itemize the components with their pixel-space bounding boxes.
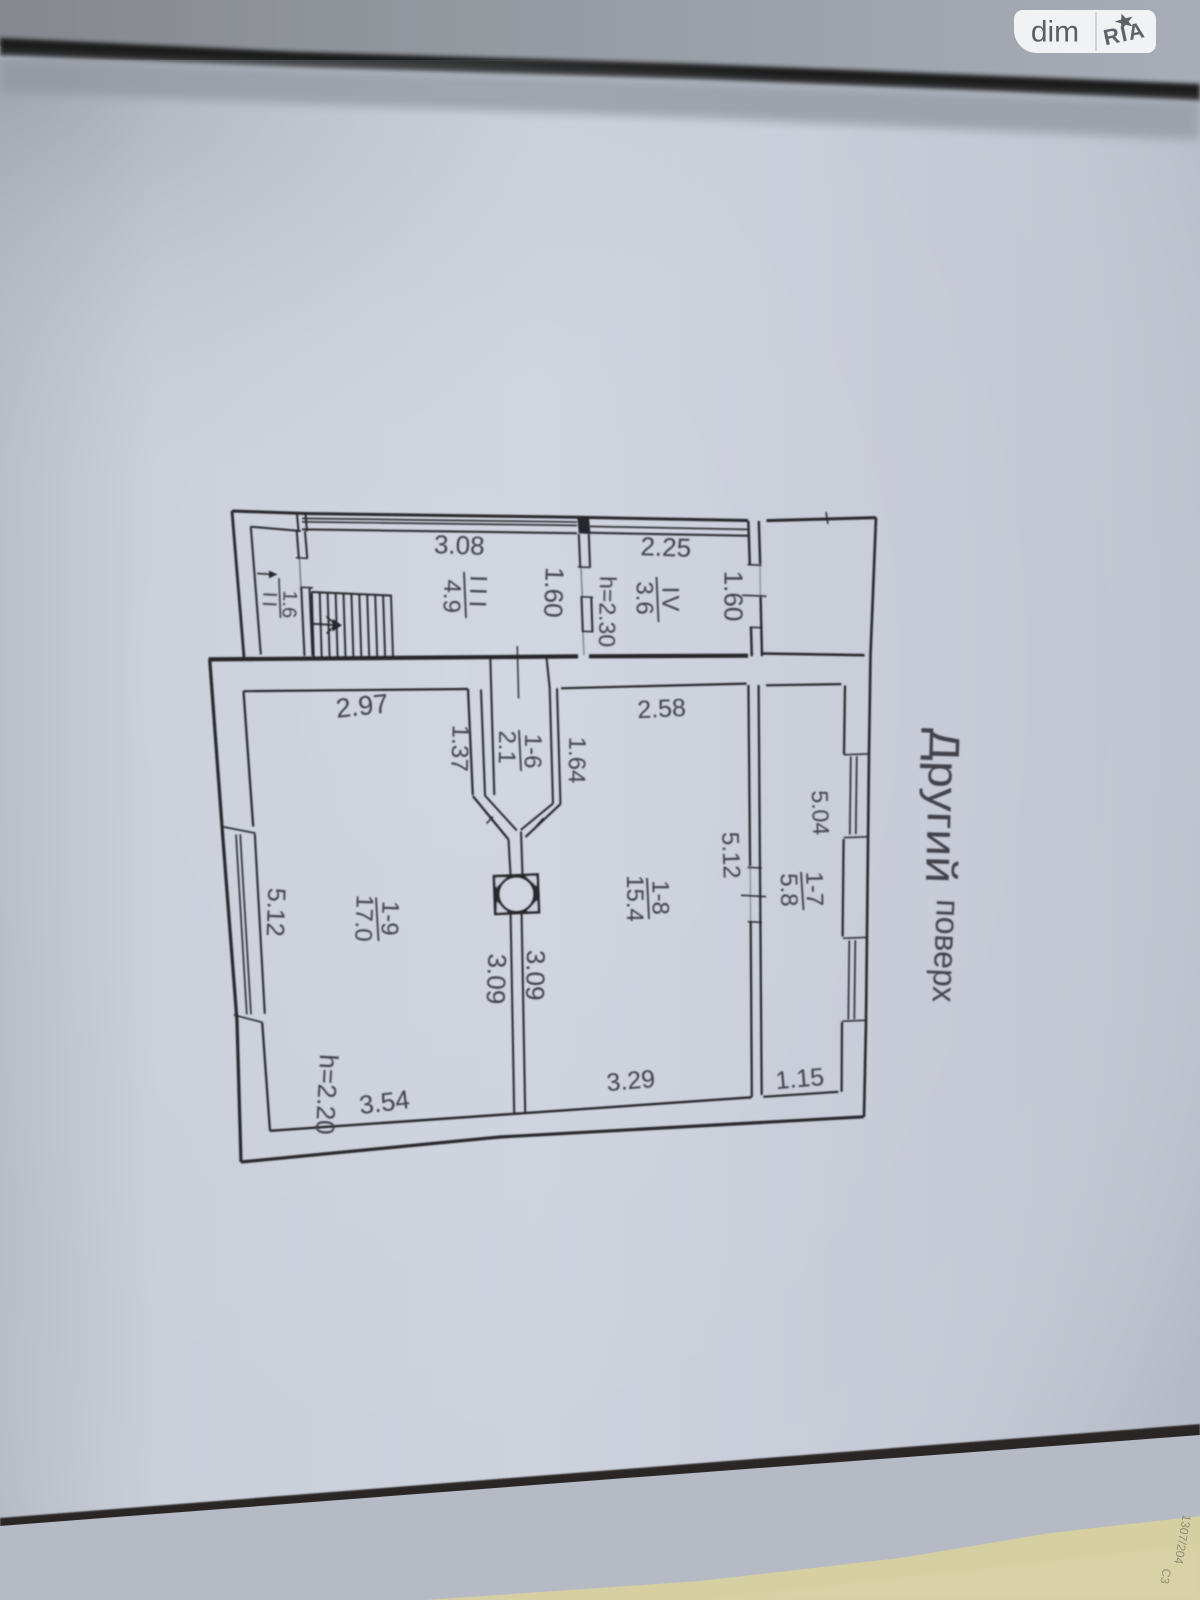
svg-text:IV: IV <box>657 587 684 614</box>
svg-text:поверх: поверх <box>925 899 966 1004</box>
svg-text:3.09: 3.09 <box>520 950 551 1001</box>
svg-text:5.8: 5.8 <box>775 873 803 907</box>
svg-text:2.25: 2.25 <box>640 531 692 563</box>
svg-text:h=2.30: h=2.30 <box>594 576 621 647</box>
svg-text:II: II <box>258 591 281 611</box>
svg-text:h=2.20: h=2.20 <box>310 1054 344 1136</box>
svg-text:1.60: 1.60 <box>719 571 749 622</box>
svg-text:5.12: 5.12 <box>261 887 291 937</box>
svg-text:3.54: 3.54 <box>357 1084 411 1120</box>
svg-text:III: III <box>463 575 491 614</box>
svg-text:1-6: 1-6 <box>519 734 547 769</box>
svg-text:1.64: 1.64 <box>563 737 591 784</box>
svg-text:1.15: 1.15 <box>774 1063 825 1095</box>
svg-text:2.1: 2.1 <box>493 730 521 764</box>
svg-text:4.9: 4.9 <box>437 579 465 613</box>
svg-text:3.6: 3.6 <box>631 581 658 614</box>
svg-text:1-9: 1-9 <box>375 900 403 936</box>
svg-text:5.04: 5.04 <box>807 790 835 836</box>
svg-text:1-7: 1-7 <box>800 871 828 906</box>
svg-text:17.0: 17.0 <box>349 894 378 942</box>
svg-text:1.37: 1.37 <box>445 724 474 772</box>
svg-text:15.4: 15.4 <box>621 875 648 922</box>
svg-text:Другий: Другий <box>916 728 968 884</box>
svg-text:2.97: 2.97 <box>334 688 389 723</box>
svg-text:3.08: 3.08 <box>434 529 486 561</box>
svg-text:5.12: 5.12 <box>716 831 745 879</box>
svg-text:1-8: 1-8 <box>647 880 674 915</box>
svg-text:dim: dim <box>1031 16 1079 49</box>
svg-text:3.09: 3.09 <box>481 953 513 1005</box>
svg-text:2.58: 2.58 <box>637 694 687 725</box>
svg-text:С3: С3 <box>1157 1567 1174 1585</box>
svg-text:1.6: 1.6 <box>277 590 300 619</box>
svg-text:3.29: 3.29 <box>605 1065 656 1097</box>
svg-text:1.60: 1.60 <box>538 567 570 619</box>
